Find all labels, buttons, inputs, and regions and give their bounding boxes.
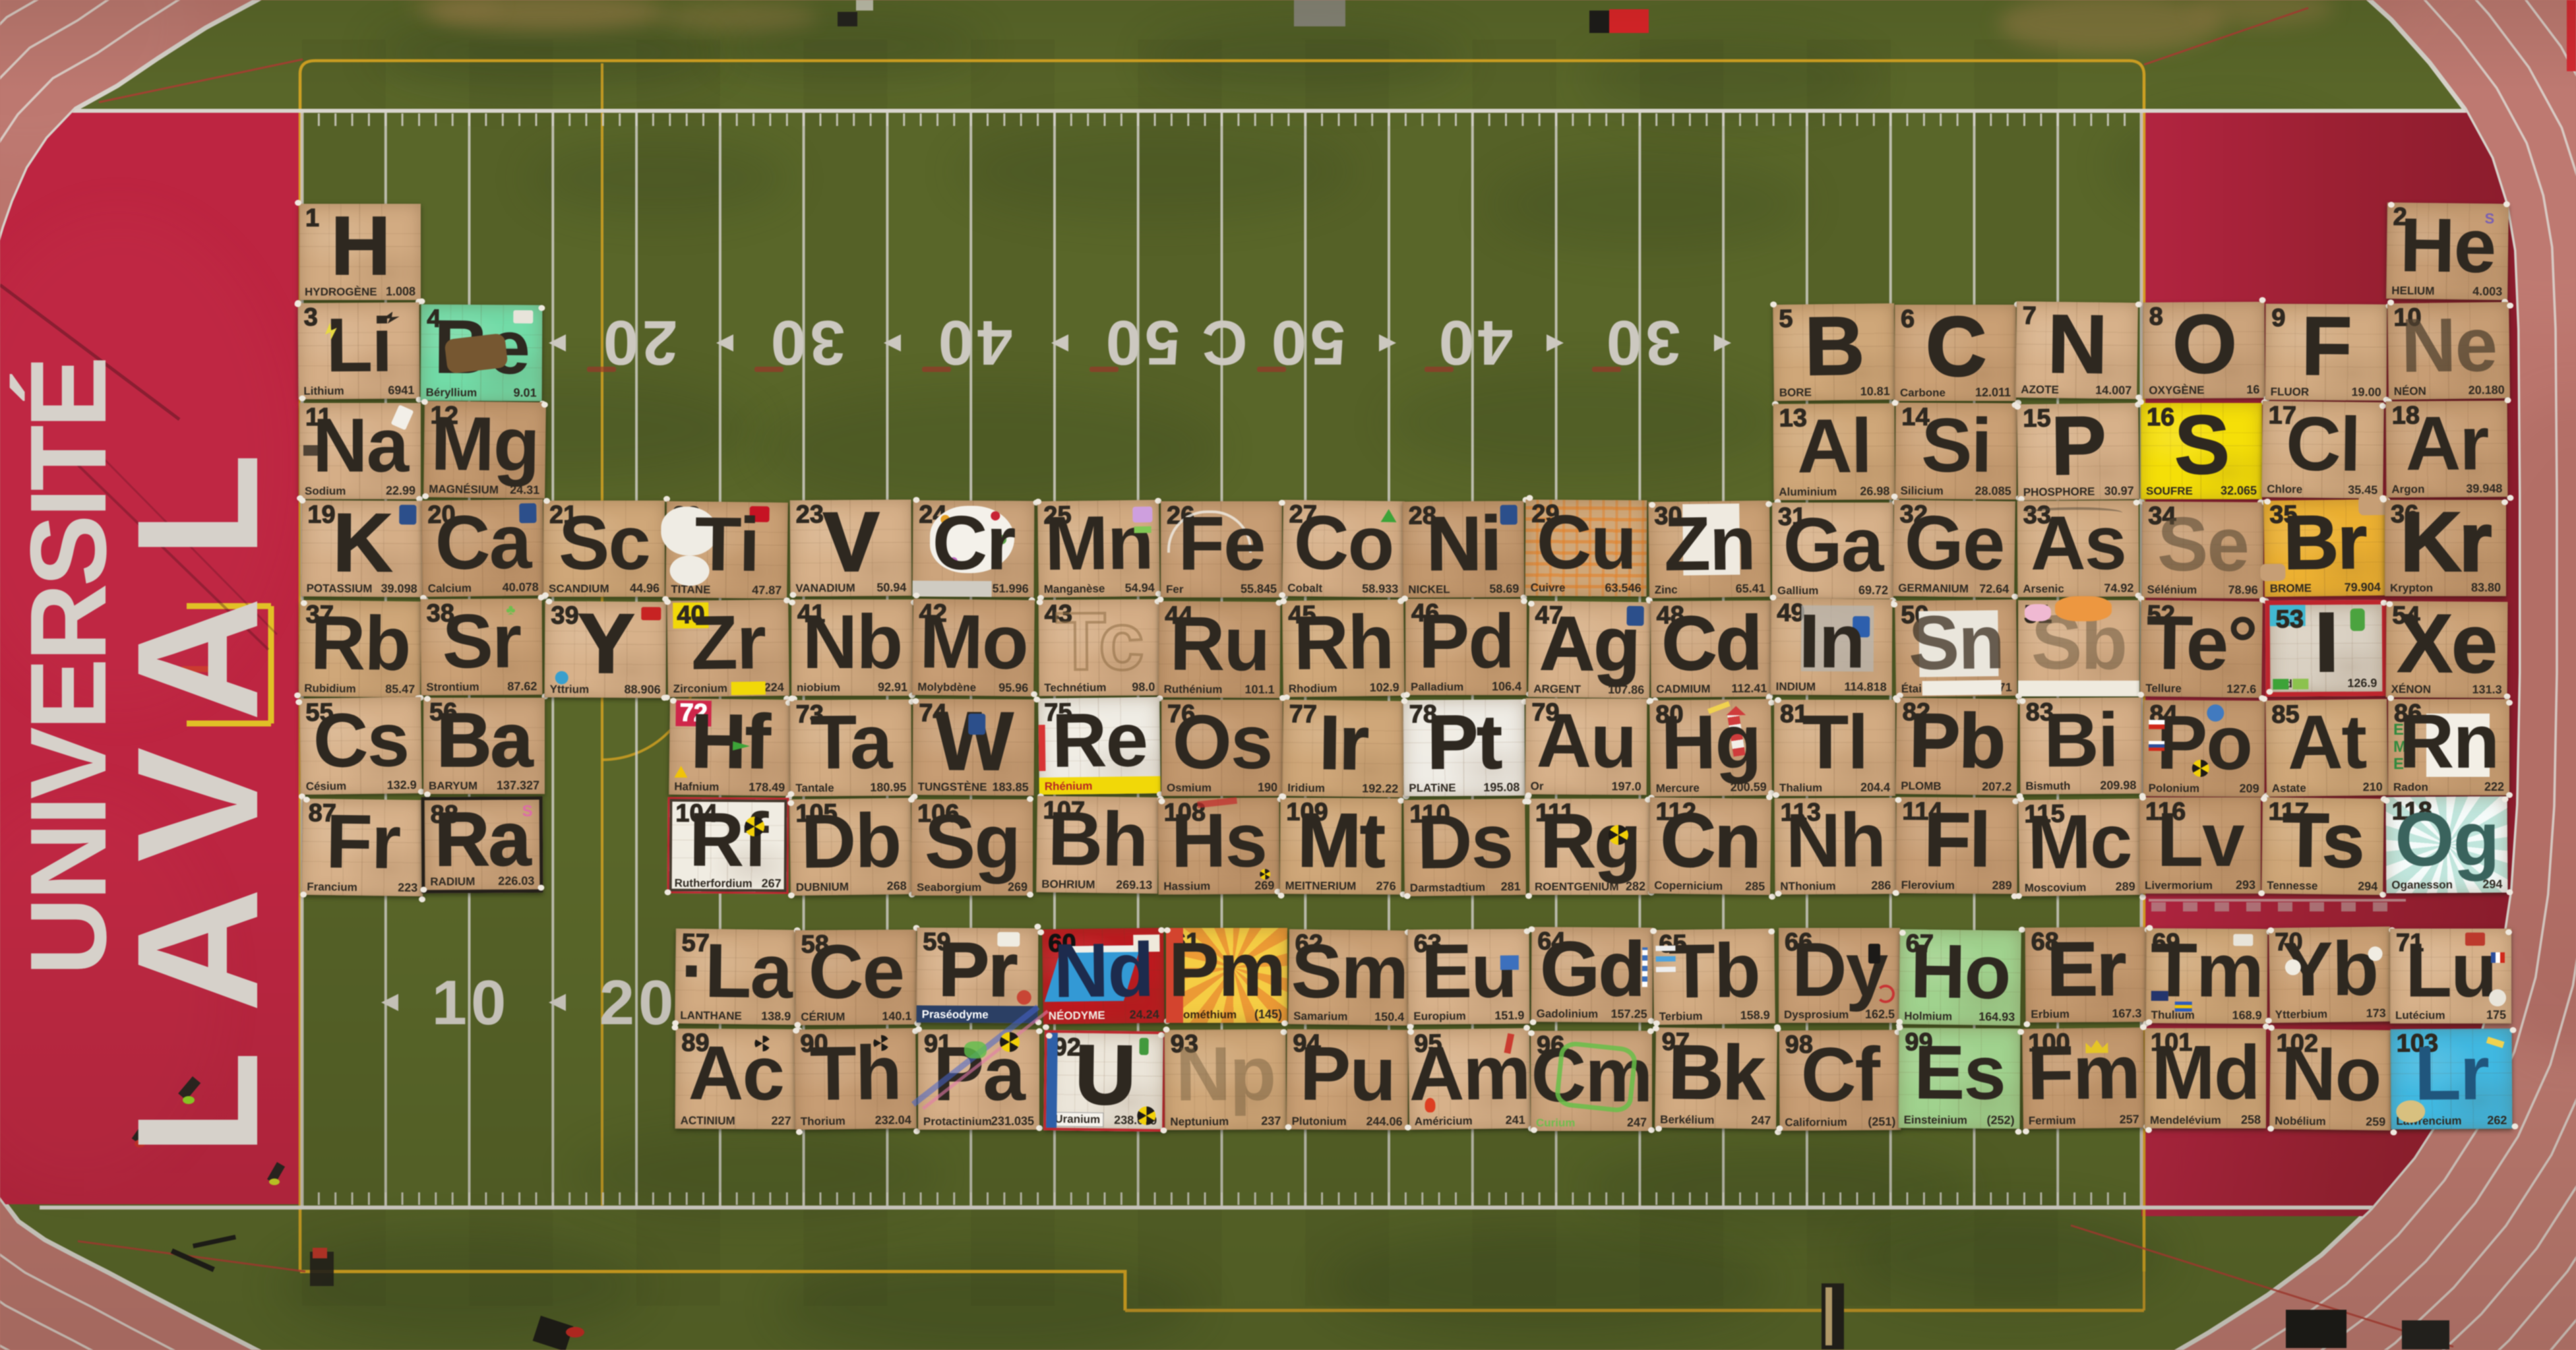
svg-text:30: 30 [767,307,845,378]
svg-text:50: 50 [1102,307,1181,378]
svg-text:40: 40 [935,307,1013,378]
svg-text:C: C [1198,307,1247,378]
svg-text:30: 30 [1603,307,1681,378]
svg-text:50: 50 [1268,307,1346,378]
svg-text:20: 20 [599,307,678,378]
svg-text:40: 40 [1435,307,1514,378]
